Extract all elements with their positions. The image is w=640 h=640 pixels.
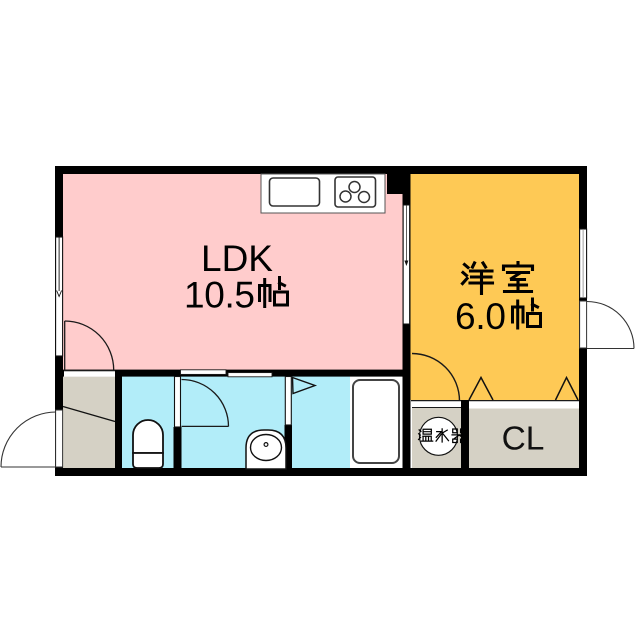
svg-text:10.5: 10.5 [184, 275, 255, 316]
svg-text:LDK: LDK [201, 238, 273, 279]
svg-text:6.0: 6.0 [455, 296, 506, 337]
svg-text:CL: CL [502, 421, 545, 458]
